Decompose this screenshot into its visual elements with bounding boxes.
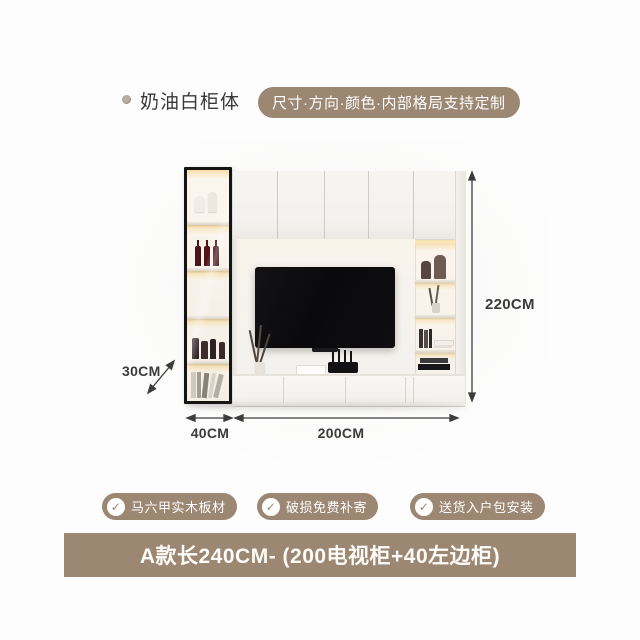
cabinet-shelf — [415, 350, 455, 353]
cabinet-door-seam — [277, 171, 278, 239]
stereo-equipment — [420, 358, 448, 363]
shelf-light-glow — [415, 243, 455, 251]
drawer-seam — [345, 377, 346, 403]
feature-label: 马六甲实木板材 — [131, 497, 226, 516]
book — [429, 329, 432, 348]
feature-label: 破损免费补寄 — [286, 497, 367, 516]
floor-shadow — [186, 404, 468, 409]
dim-label-main-width: 200CM — [309, 425, 373, 441]
bullet-dot-icon — [122, 95, 131, 104]
plant-vase — [432, 303, 440, 313]
television — [255, 267, 395, 348]
glass-door-reflection — [187, 170, 229, 401]
feature-pill-material: ✓ 马六甲实木板材 — [102, 493, 237, 520]
dim-label-left-width: 40CM — [187, 425, 233, 441]
cabinet-door-seam — [413, 171, 414, 239]
variant-title-bar: A款长240CM- (200电视柜+40左边柜) — [64, 533, 576, 577]
dim-label-height: 220CM — [485, 296, 535, 313]
niche-side-panel — [233, 239, 239, 375]
check-icon: ✓ — [415, 498, 433, 516]
shelf-light-glow — [415, 282, 455, 290]
book-stack — [434, 345, 452, 348]
router-antenna — [338, 349, 340, 363]
check-icon: ✓ — [262, 498, 280, 516]
feature-pill-delivery-install: ✓ 送货入户包安装 — [410, 493, 545, 520]
product-color-label: 奶油白柜体 — [140, 87, 240, 114]
cabinet-door-seam — [368, 171, 369, 239]
product-detail-image: 奶油白柜体 尺寸·方向·颜色·内部格局支持定制 — [0, 0, 640, 640]
upper-cabinets — [233, 171, 465, 240]
drawer-seam — [405, 377, 406, 403]
drawer-seam — [413, 377, 414, 403]
dim-label-depth: 30CM — [122, 363, 161, 379]
shelf-light-glow — [415, 317, 455, 325]
customization-badge: 尺寸·方向·颜色·内部格局支持定制 — [258, 87, 520, 118]
plant-vase — [255, 362, 265, 374]
cabinet-shelf — [415, 315, 455, 318]
cabinet-shelf — [415, 280, 455, 283]
book — [419, 329, 423, 348]
stereo-equipment — [418, 364, 450, 370]
feature-pill-damage-reship: ✓ 破损免费补寄 — [257, 493, 378, 520]
black-router — [328, 362, 358, 373]
cabinet-door-seam — [324, 171, 325, 239]
decor-vase — [434, 255, 446, 279]
book — [424, 330, 428, 348]
base-cabinet — [233, 374, 465, 407]
feature-label: 送货入户包安装 — [439, 497, 534, 516]
right-side-panel — [455, 171, 466, 404]
drawer-seam — [283, 377, 284, 403]
decor-vase — [421, 261, 431, 279]
check-icon: ✓ — [107, 498, 125, 516]
tv-stand — [312, 348, 338, 352]
